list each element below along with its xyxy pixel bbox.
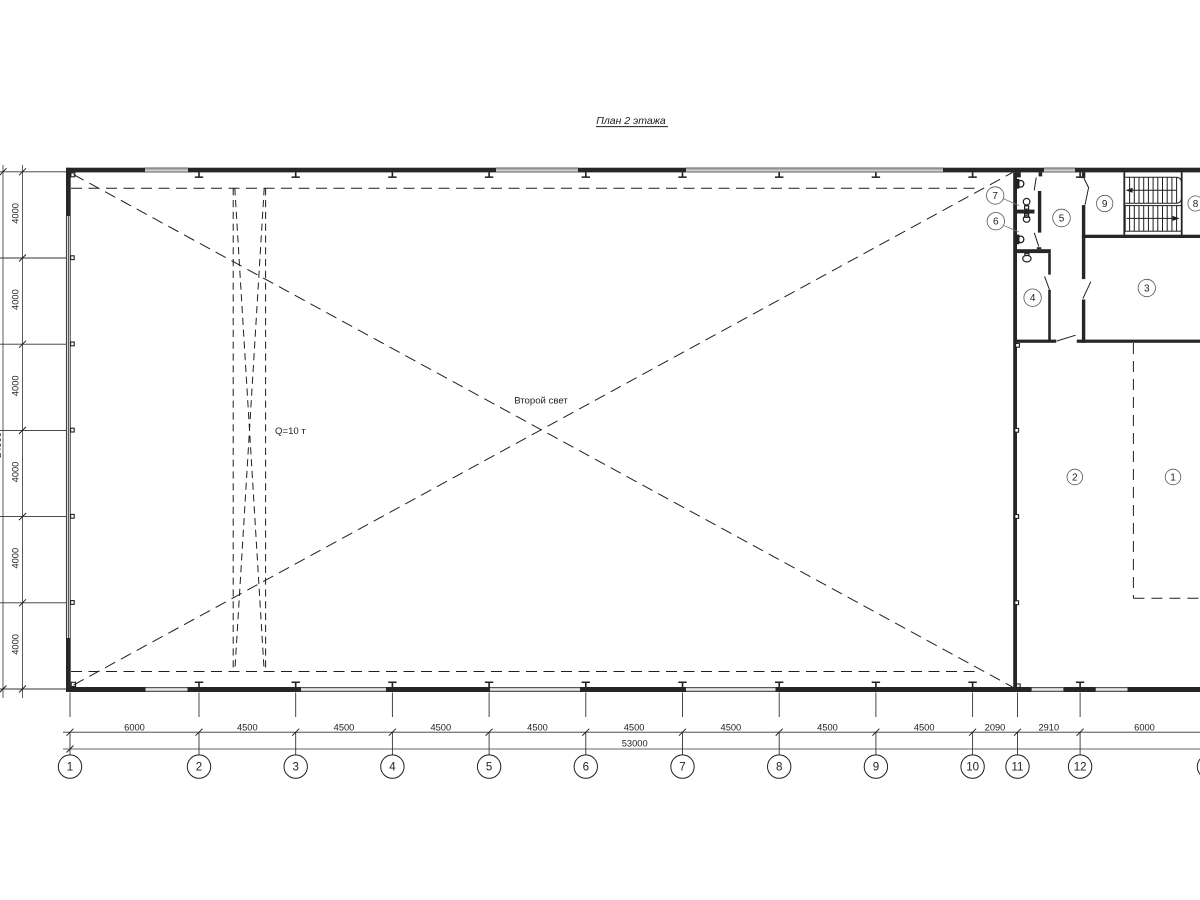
svg-text:4500: 4500 (624, 722, 645, 732)
svg-text:4500: 4500 (334, 722, 355, 732)
svg-text:9: 9 (873, 762, 879, 774)
svg-text:4500: 4500 (721, 722, 742, 732)
svg-text:Второй свет: Второй свет (514, 396, 568, 407)
svg-text:4: 4 (389, 762, 396, 774)
svg-text:4500: 4500 (237, 722, 258, 732)
svg-text:5: 5 (1059, 214, 1065, 225)
svg-text:6: 6 (993, 217, 999, 228)
svg-text:4000: 4000 (10, 548, 20, 569)
svg-text:11: 11 (1012, 762, 1024, 774)
svg-text:4000: 4000 (10, 462, 20, 483)
svg-text:6: 6 (583, 762, 589, 774)
svg-text:8: 8 (776, 762, 782, 774)
svg-text:4: 4 (1030, 293, 1036, 304)
svg-text:8: 8 (1193, 199, 1199, 210)
svg-text:2: 2 (1072, 473, 1078, 484)
svg-text:2910: 2910 (1038, 722, 1059, 732)
svg-text:4000: 4000 (10, 634, 20, 655)
svg-text:4000: 4000 (10, 289, 20, 310)
svg-text:7: 7 (992, 191, 998, 202)
svg-text:3: 3 (1144, 284, 1150, 295)
svg-text:3: 3 (292, 762, 298, 774)
svg-text:4500: 4500 (430, 722, 451, 732)
svg-text:4500: 4500 (817, 722, 838, 732)
svg-text:4000: 4000 (10, 375, 20, 396)
svg-text:План 2 этажа: План 2 этажа (596, 115, 666, 127)
svg-text:2: 2 (196, 762, 202, 774)
svg-text:4500: 4500 (914, 722, 935, 732)
svg-text:53000: 53000 (622, 738, 648, 748)
svg-text:5: 5 (486, 762, 492, 774)
svg-text:10: 10 (966, 762, 979, 774)
svg-text:Q=10 т: Q=10 т (275, 426, 306, 437)
svg-text:2090: 2090 (985, 722, 1006, 732)
svg-text:9: 9 (1102, 199, 1108, 210)
svg-text:24000: 24000 (0, 432, 3, 458)
svg-text:4500: 4500 (527, 722, 548, 732)
svg-text:12: 12 (1074, 762, 1087, 774)
svg-text:1: 1 (67, 762, 73, 774)
svg-text:4000: 4000 (10, 203, 20, 224)
svg-text:6000: 6000 (1134, 722, 1155, 732)
svg-text:6000: 6000 (124, 722, 145, 732)
svg-text:7: 7 (679, 762, 685, 774)
svg-text:1: 1 (1170, 473, 1176, 484)
